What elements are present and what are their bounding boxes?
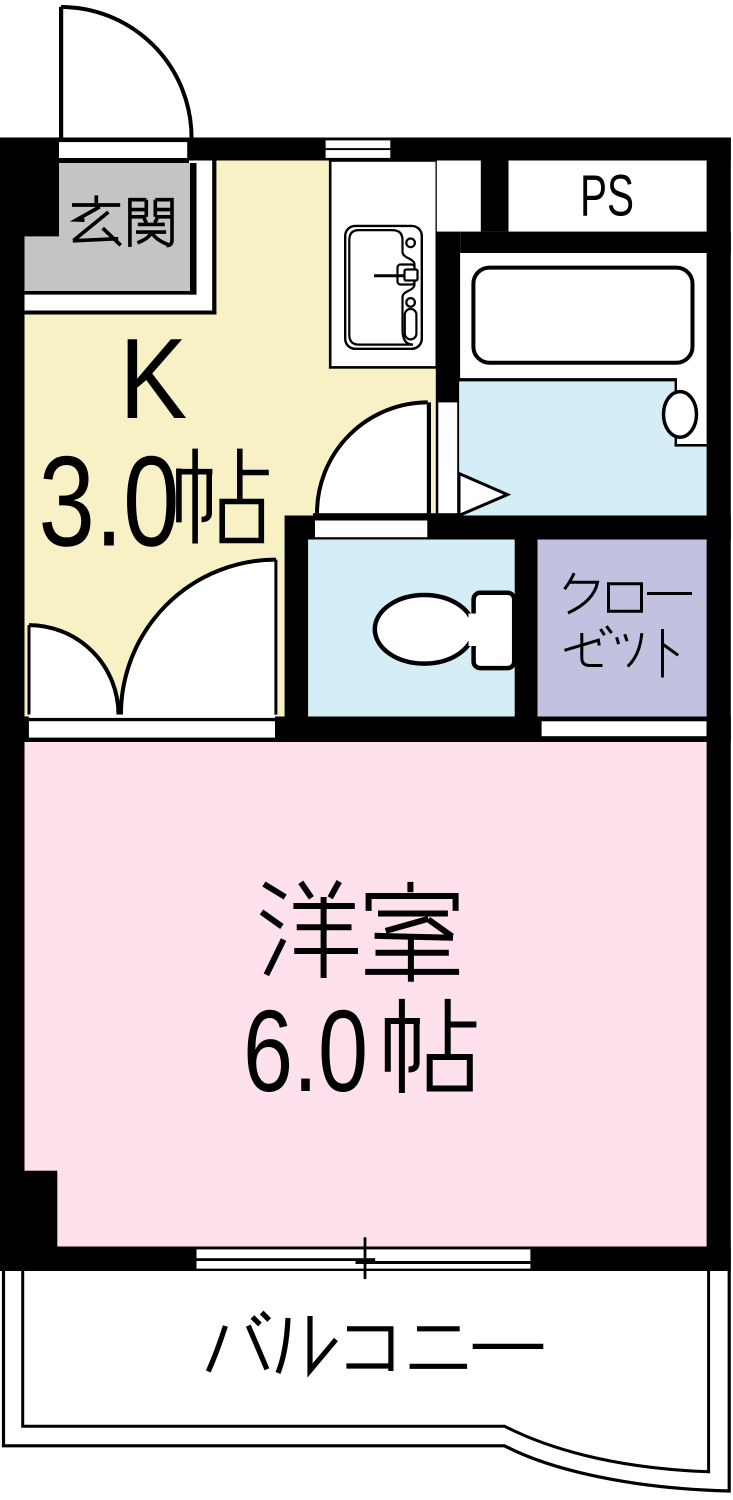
- svg-text:3.0: 3.0: [39, 431, 180, 574]
- svg-text:K: K: [119, 316, 187, 443]
- svg-text:PS: PS: [580, 163, 634, 228]
- svg-text:6.0: 6.0: [243, 986, 368, 1116]
